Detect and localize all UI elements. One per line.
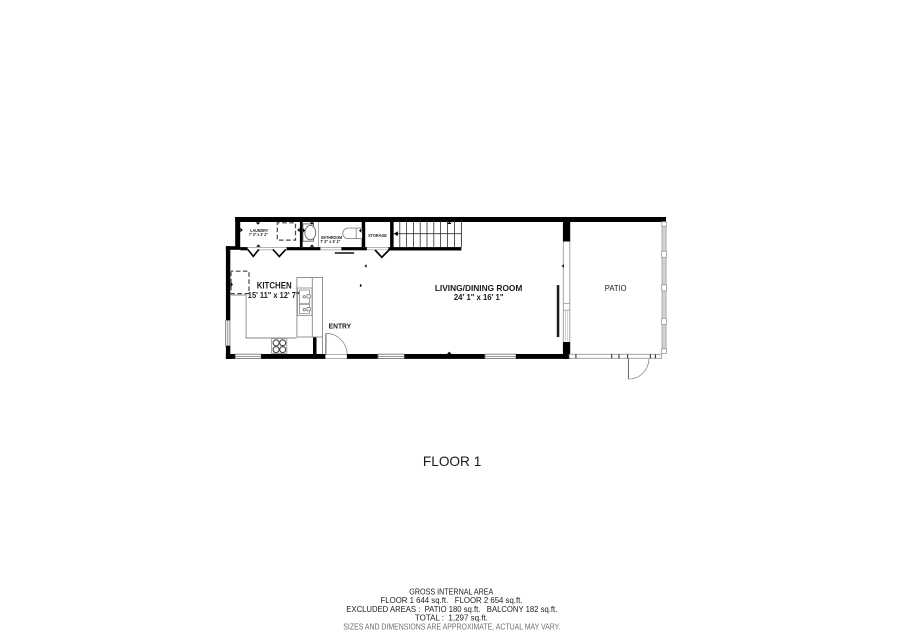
svg-text:STORAGE: STORAGE	[368, 233, 387, 238]
svg-text:GROSS INTERNAL AREA: GROSS INTERNAL AREA	[409, 587, 493, 596]
svg-text:15' 11" x 12' 7": 15' 11" x 12' 7"	[248, 291, 300, 300]
svg-text:PATIO: PATIO	[605, 284, 627, 293]
svg-text:FLOOR 1: FLOOR 1	[423, 453, 482, 469]
svg-text:LIVING/DINING ROOM: LIVING/DINING ROOM	[435, 283, 523, 293]
svg-text:ENTRY: ENTRY	[329, 321, 352, 330]
svg-text:24' 1" x 16' 1": 24' 1" x 16' 1"	[454, 293, 504, 302]
svg-text:FLOOR 1 644 sq.ft. FLOOR 2 6: FLOOR 1 644 sq.ft. FLOOR 2 654 sq.ft.	[381, 596, 523, 605]
svg-text:TOTAL : 1,297 sq.ft.: TOTAL : 1,297 sq.ft.	[415, 613, 488, 622]
svg-text:KITCHEN: KITCHEN	[257, 281, 292, 291]
svg-text:SIZES AND DIMENSIONS ARE APPRO: SIZES AND DIMENSIONS ARE APPROXIMATE, AC…	[343, 622, 560, 631]
svg-text:7' 2" x 3' 2": 7' 2" x 3' 2"	[320, 239, 340, 244]
svg-text:7' 3" x 3' 2": 7' 3" x 3' 2"	[249, 232, 268, 237]
